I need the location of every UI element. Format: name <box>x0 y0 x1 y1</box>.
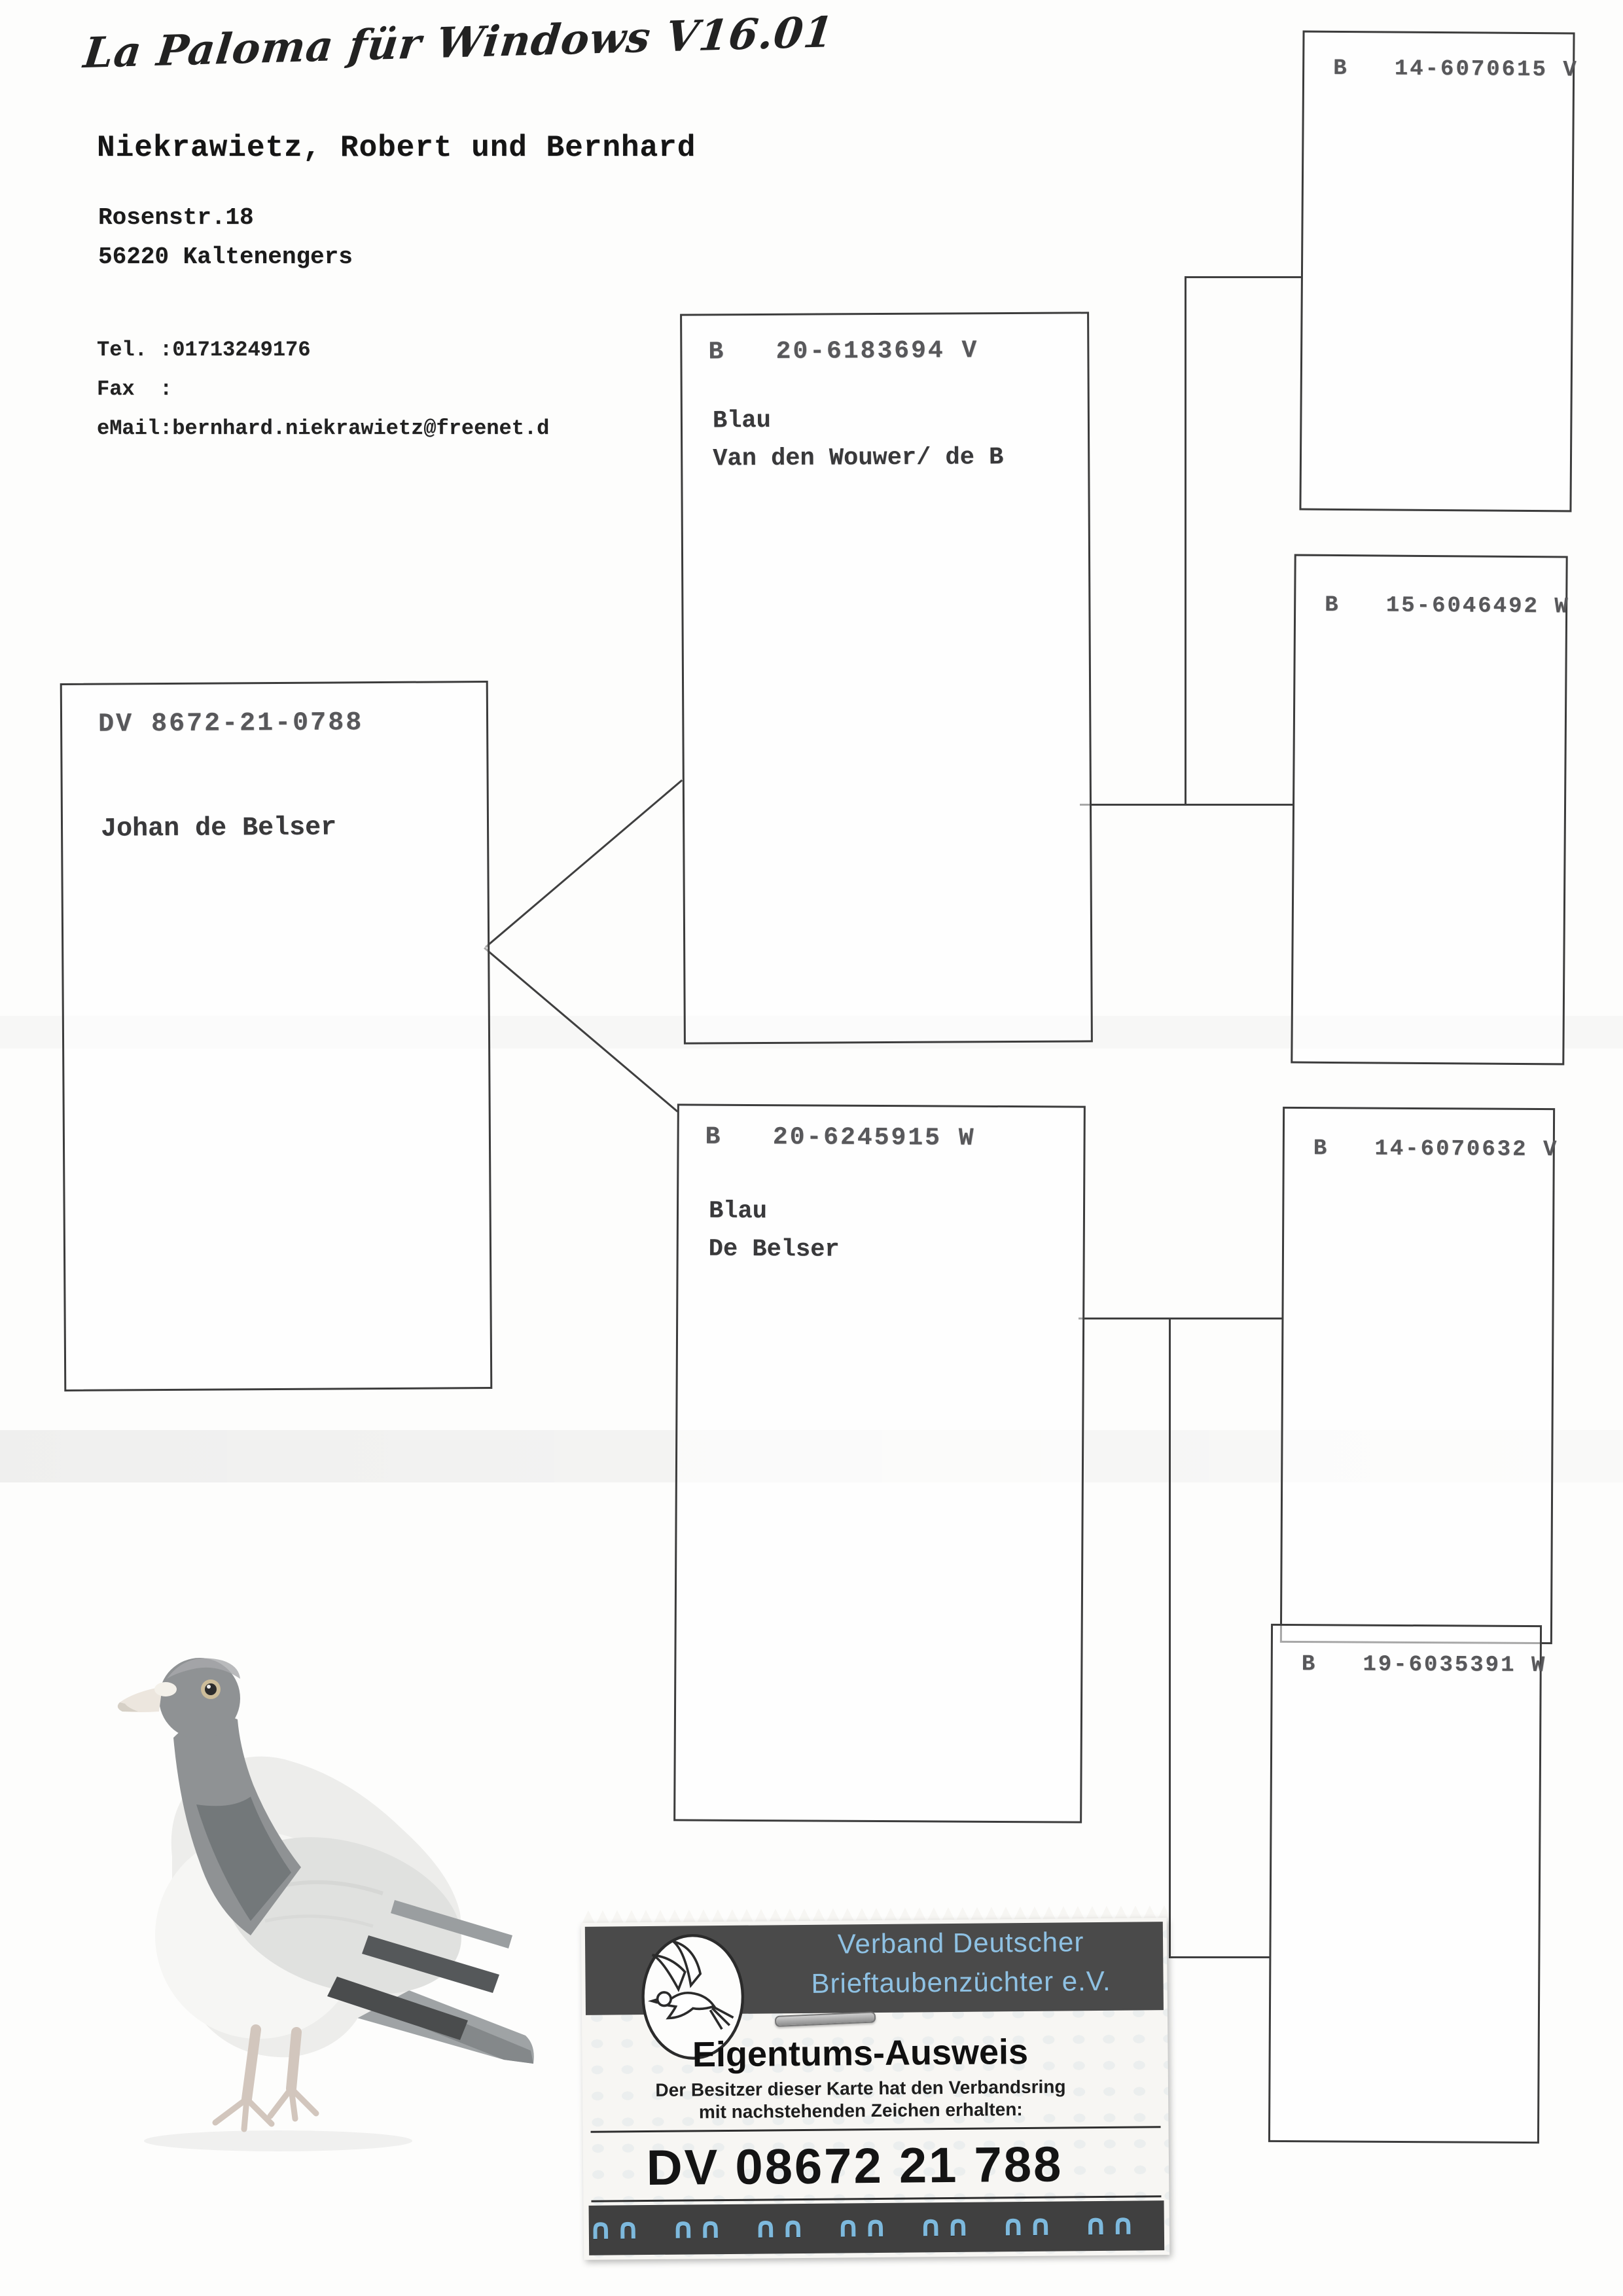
sire-color: Blau <box>713 407 771 435</box>
staple <box>775 2011 876 2027</box>
owner-fax: Fax : <box>97 377 172 401</box>
grandparent-3-ring: B 14-6070632 V <box>1313 1136 1559 1162</box>
owner-street: Rosenstr.18 <box>98 204 254 231</box>
owner-city: 56220 Kaltenengers <box>98 243 353 270</box>
owner-name: Niekrawietz, Robert und Bernhard <box>97 131 696 165</box>
stamp-organization: Verband Deutscher Brieftaubenzüchter e.V… <box>771 1922 1151 2013</box>
dam-color: Blau <box>709 1198 767 1225</box>
subject-ring: DV 8672-21-0788 <box>98 708 363 739</box>
dam-strain: De Belser <box>709 1236 840 1264</box>
ownership-stamp: Verband Deutscher Brieftaubenzüchter e.V… <box>581 1918 1169 2260</box>
stamp-ring-number: DV 08672 21 788 <box>583 2136 1127 2197</box>
app-logo: La Paloma für Windows V16.01 <box>81 8 836 78</box>
stamp-org-line1: Verband Deutscher <box>771 1922 1151 1964</box>
dove-pattern-glyphs: ∩∩ ∩∩ ∩∩ ∩∩ ∩∩ ∩∩ ∩∩ ∩∩ ∩∩ ∩∩ <box>589 2206 1165 2246</box>
pedigree-document: La Paloma für Windows V16.01 Niekrawietz… <box>0 0 1623 2296</box>
connector-sire-gp1 <box>1185 276 1302 278</box>
stamp-divider <box>591 2126 1161 2133</box>
grandparent-2-ring: B 15-6046492 W <box>1325 593 1570 620</box>
connector-subject-sire <box>485 780 683 948</box>
stamp-org-line2: Brieftaubenzüchter e.V. <box>771 1961 1151 2003</box>
sire-strain: Van den Wouwer/ de B <box>713 444 1003 473</box>
owner-email: eMail:bernhard.niekrawietz@freenet.d <box>97 416 549 440</box>
connector-dam-gp3 <box>1079 1318 1283 1319</box>
grandparent-box-3: B 14-6070632 V <box>1280 1107 1555 1644</box>
sire-box: B 20-6183694 V Blau Van den Wouwer/ de B <box>680 312 1093 1044</box>
dam-ring: B 20-6245915 W <box>705 1123 975 1153</box>
pigeon-photo <box>75 1613 546 2163</box>
connector-sire-spine <box>1185 276 1186 806</box>
grandparent-1-ring: B 14-6070615 V <box>1333 56 1578 83</box>
grandparent-box-2: B 15-6046492 W <box>1291 554 1567 1066</box>
subject-box: DV 8672-21-0788 Johan de Belser <box>60 681 493 1391</box>
grandparent-box-4: B 19-6035391 W <box>1268 1624 1542 2144</box>
dove-pattern-band: ∩∩ ∩∩ ∩∩ ∩∩ ∩∩ ∩∩ ∩∩ ∩∩ ∩∩ ∩∩ <box>589 2200 1165 2255</box>
stamp-title: Eigentums-Ausweis <box>582 2030 1139 2075</box>
dam-box: B 20-6245915 W Blau De Belser <box>673 1103 1086 1823</box>
subject-name: Johan de Belser <box>101 813 336 844</box>
connector-subject-dam <box>484 947 678 1112</box>
stamp-subtitle-line2: mit nachstehenden Zeichen erhalten: <box>582 2097 1139 2124</box>
connector-dam-gp4 <box>1169 1956 1271 1958</box>
grandparent-box-1: B 14-6070615 V <box>1299 31 1575 512</box>
owner-tel: Tel. :01713249176 <box>97 338 310 362</box>
connector-dam-spine <box>1169 1318 1171 1958</box>
grandparent-4-ring: B 19-6035391 W <box>1302 1652 1547 1678</box>
connector-sire-gp2 <box>1080 804 1294 806</box>
sire-ring: B 20-6183694 V <box>708 336 978 366</box>
